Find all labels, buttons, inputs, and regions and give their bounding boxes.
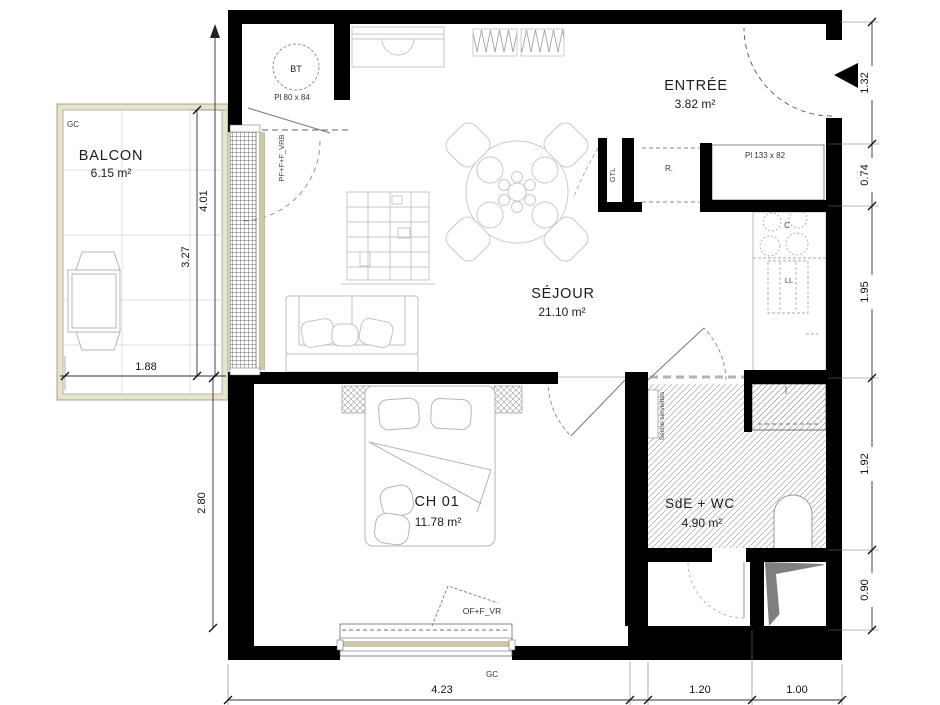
bathroom	[648, 384, 826, 548]
wall-gtl-right	[622, 138, 634, 212]
wall-sejour-bedroom	[254, 372, 558, 384]
dim-left-0: 4.01	[198, 190, 210, 211]
dim-chain-bottom: 4.23 1.20 1.00	[224, 684, 846, 704]
dim-bottom-1: 1.20	[689, 684, 710, 696]
bedroom-window	[337, 586, 515, 656]
dining-table	[442, 119, 592, 265]
towel-dryer-label: Sèche-serviettes	[659, 391, 666, 440]
sejour-furniture	[286, 27, 592, 372]
dim-right-2: 1.95	[859, 281, 871, 302]
wall-bottom-right	[628, 626, 842, 660]
dim-right-3: 1.92	[859, 453, 871, 474]
water-heater-label: BT	[290, 64, 302, 74]
wall-right-stub	[826, 10, 842, 40]
decor-panel-right	[521, 29, 564, 56]
wall-gtl-bottom	[598, 202, 642, 212]
dim-left-1: 3.27	[180, 246, 192, 267]
balcony-label: BALCON	[79, 148, 143, 164]
dim-bottom-2: 1.00	[786, 684, 807, 696]
bedroom-door-leaf	[571, 380, 625, 436]
nightstand-right	[494, 386, 522, 413]
bathroom-area: 4.90 m²	[682, 516, 723, 530]
living-room-label: SÉJOUR	[531, 285, 595, 302]
wall-left-upper	[228, 10, 242, 132]
bottom-rooms	[648, 562, 826, 626]
closet-door-leaf	[248, 108, 330, 133]
shelf-unit	[341, 192, 435, 284]
wall-right-main	[826, 118, 842, 660]
bedroom-label: CH 01	[414, 494, 459, 510]
floor-plan-drawing: BALCON 6.15 m² ENTRÉE 3.82 m² SÉJOUR 21.…	[0, 0, 940, 705]
dim-bottom-0: 4.23	[431, 684, 452, 696]
dim-balcony-width: 1.88	[135, 361, 156, 373]
wall-room-divider	[750, 562, 764, 626]
wall-bottom-left	[228, 646, 340, 660]
wall-bedroom-bathroom	[625, 372, 648, 626]
bt-placard-label: Pl 80 x 84	[274, 93, 310, 102]
bathroom-door-leaf	[648, 328, 704, 380]
r-closet-label: R.	[665, 164, 673, 173]
shower	[752, 384, 826, 430]
bedroom-area: 11.78 m²	[415, 515, 461, 529]
entry-door-swing	[744, 28, 832, 116]
wall-closet-bottom	[700, 200, 826, 212]
wall-left-lower	[228, 372, 254, 660]
gc-window-label: GC	[486, 670, 498, 679]
floor-plan-page: BALCON 6.15 m² ENTRÉE 3.82 m² SÉJOUR 21.…	[0, 0, 940, 705]
gtl-label: GTL	[608, 168, 617, 183]
kitchen-counter	[753, 212, 826, 372]
r-closet-outline	[642, 148, 700, 202]
towel-dryer	[648, 390, 658, 438]
console-table	[352, 27, 444, 67]
wall-bath-bottom-b	[746, 548, 826, 562]
washer-label: LL	[785, 276, 793, 285]
toilet	[774, 495, 812, 548]
entry-direction-arrow	[834, 63, 858, 88]
dim-right-4: 0.90	[859, 579, 871, 600]
sofa	[286, 296, 418, 372]
balcony-window	[230, 125, 265, 375]
bedroom-door-swing	[548, 380, 571, 436]
balcony-door-type-label: PF+F+F_VRB	[277, 134, 286, 181]
entry-area: 3.82 m²	[675, 97, 716, 111]
living-room-area: 21.10 m²	[538, 305, 585, 319]
wall-bottom-mid	[512, 646, 628, 660]
wall-bath-bottom-a	[648, 548, 712, 562]
entry-label: ENTRÉE	[664, 77, 728, 94]
bathroom-label: SdE + WC	[665, 496, 735, 511]
dim-left-2: 2.80	[196, 492, 208, 513]
cooktop-label: C	[784, 221, 790, 230]
dim-right-1: 0.74	[859, 164, 871, 185]
wall-top	[228, 10, 842, 24]
bedroom-window-type-label: OF+F_VR	[463, 606, 502, 616]
kitchen	[753, 210, 826, 372]
bathroom-door-swing	[704, 328, 726, 380]
wall-sejour-bathroom	[744, 370, 826, 384]
dim-right-0: 1.32	[859, 72, 871, 93]
dim-chain-right: 1.32 0.74 1.95 1.92 0.90	[859, 18, 876, 634]
gc-balcony-label: GC	[67, 120, 79, 129]
wall-gtl-left	[598, 138, 607, 212]
entry-placard-label: Pl 133 x 82	[745, 151, 786, 160]
balcony-area: 6.15 m²	[91, 166, 132, 180]
wall-shower-jamb	[744, 384, 752, 432]
wall-bt-stub	[334, 24, 350, 100]
decor-panel-left	[473, 29, 517, 56]
closet-room	[648, 562, 750, 626]
bt-closet	[242, 44, 348, 133]
